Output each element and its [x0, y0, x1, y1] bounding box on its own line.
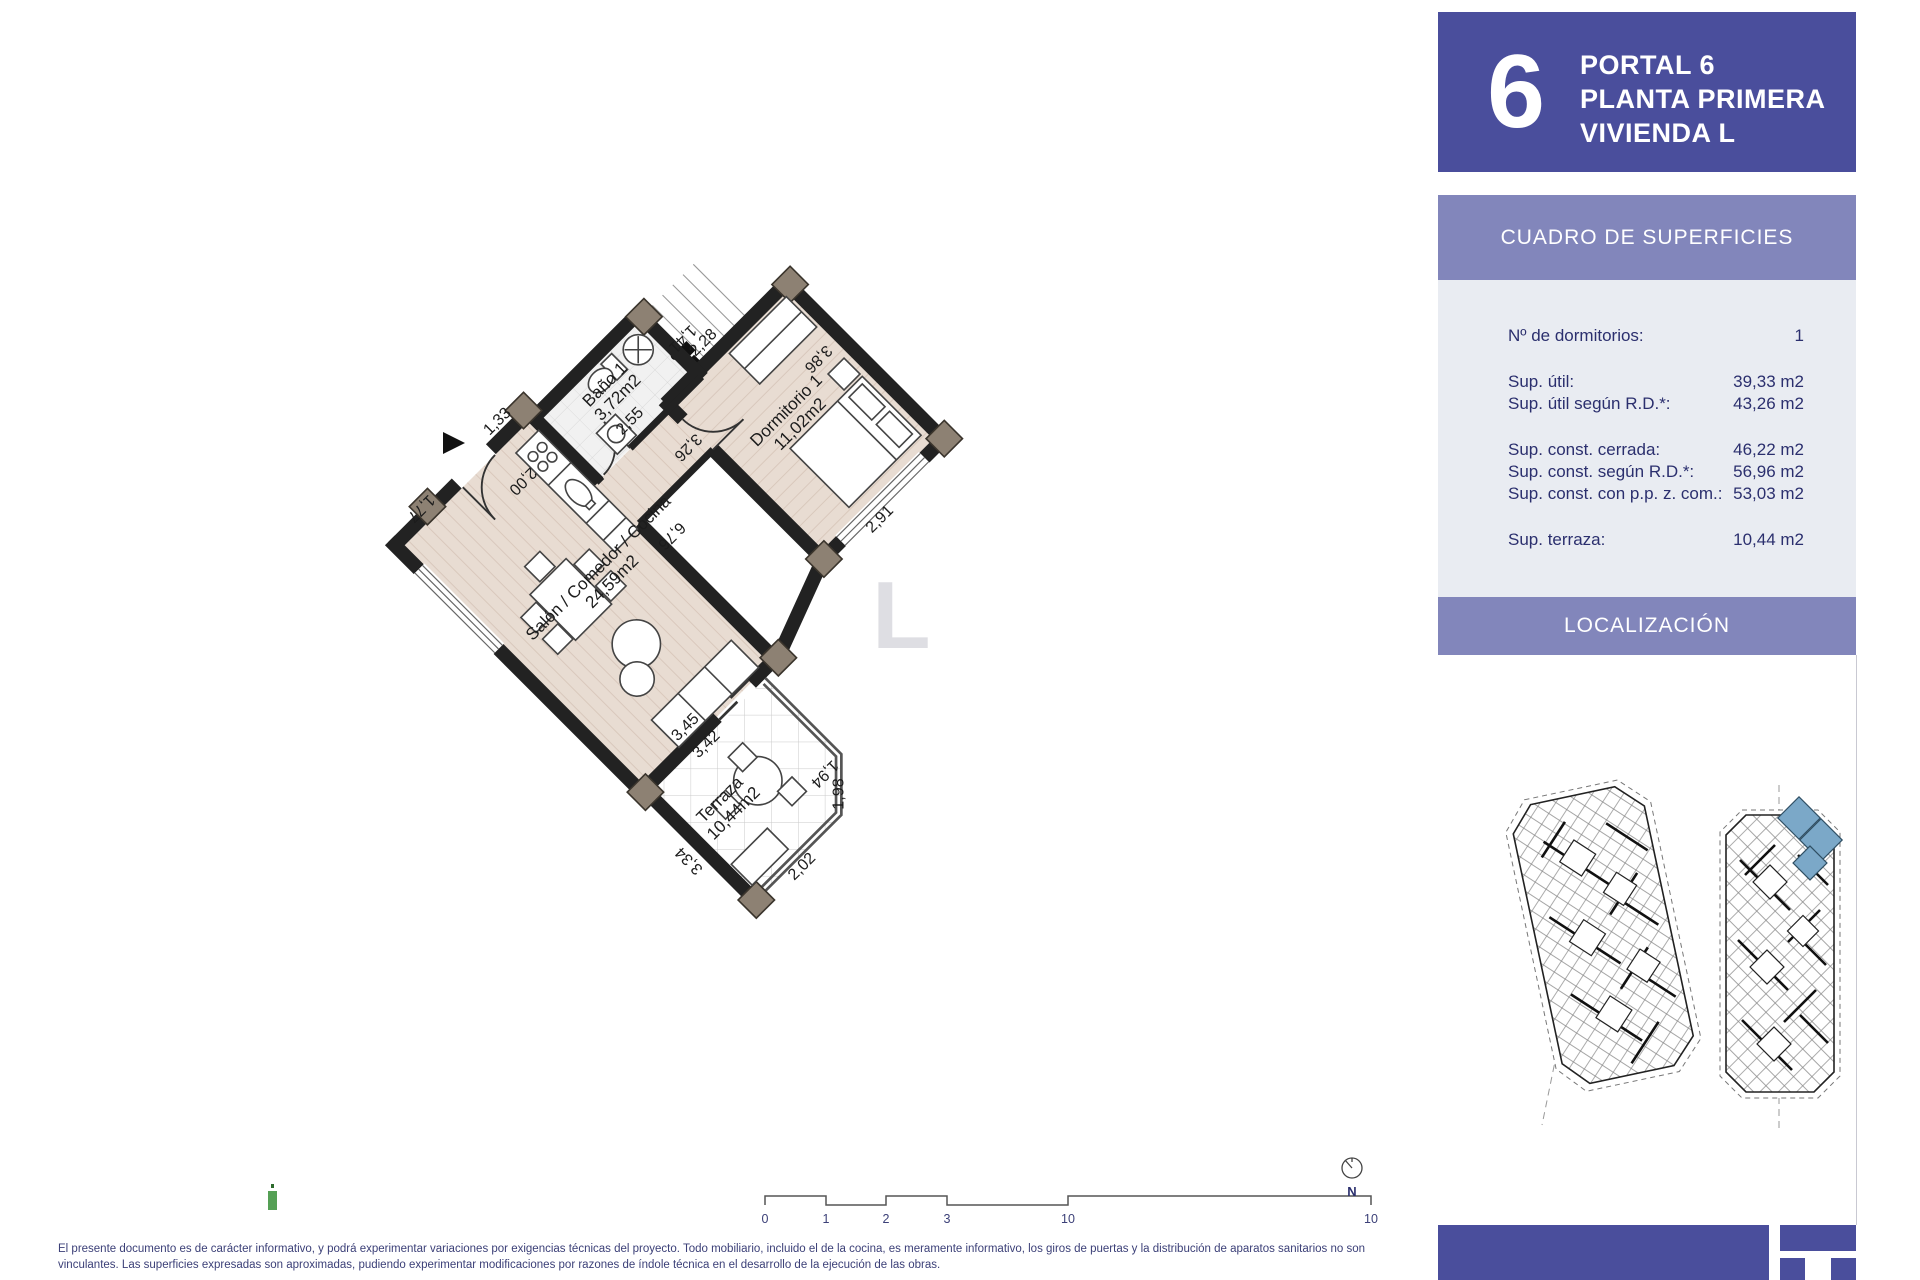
disclaimer-line-2: vinculantes. Las superficies expresadas … [58, 1259, 940, 1271]
building-left [1500, 774, 1707, 1096]
disclaimer-line-1: El presente documento es de carácter inf… [58, 1243, 1365, 1255]
table-row: Sup. const. con p.p. z. com.: 53,03 m2 [1508, 484, 1804, 506]
site-location-map [1438, 655, 1857, 1225]
scale-label-2: 2 [871, 1212, 901, 1226]
floor-plan: Baño 1 3,72m2 Dormitorio 1 11,02m2 Salón… [360, 150, 1220, 1070]
header-line-portal: PORTAL 6 [1580, 48, 1826, 82]
surfaces-band: CUADRO DE SUPERFICIES [1438, 195, 1856, 280]
table-row: Sup. útil según R.D.*: 43,26 m2 [1508, 394, 1804, 416]
footer-bar [1438, 1225, 1769, 1280]
header-box: 6 PORTAL 6 PLANTA PRIMERA VIVIENDA L [1438, 12, 1856, 172]
plan-sheet: Baño 1 3,72m2 Dormitorio 1 11,02m2 Salón… [0, 0, 1920, 1280]
scale-label-3: 3 [932, 1212, 962, 1226]
entrance-arrow-icon [443, 432, 465, 454]
header-line-vivienda: VIVIENDA L [1580, 116, 1826, 150]
surfaces-title: CUADRO DE SUPERFICIES [1501, 226, 1794, 250]
watermark-letter: L [872, 568, 931, 664]
north-compass-icon [1334, 1150, 1370, 1184]
localizacion-band: LOCALIZACIÓN [1438, 597, 1856, 655]
scale-label-1: 1 [811, 1212, 841, 1226]
table-row: Sup. útil: 39,33 m2 [1508, 372, 1804, 394]
localizacion-title: LOCALIZACIÓN [1564, 614, 1730, 638]
header-title: PORTAL 6 PLANTA PRIMERA VIVIENDA L [1580, 48, 1826, 150]
table-row: Nº de dormitorios: 1 [1508, 326, 1804, 348]
scale-label-10: 10 [1356, 1212, 1386, 1226]
scale-label-5: 10 [1053, 1212, 1083, 1226]
table-row: Sup. terraza: 10,44 m2 [1508, 530, 1804, 552]
header-line-planta: PLANTA PRIMERA [1580, 82, 1826, 116]
green-marker-dot [271, 1184, 274, 1188]
table-row: Sup. const. cerrada: 46,22 m2 [1508, 440, 1804, 462]
scale-label-0: 0 [750, 1212, 780, 1226]
portal-number: 6 [1456, 20, 1576, 164]
dim-198: 1,98 [829, 778, 847, 809]
green-marker-bar [268, 1191, 277, 1210]
table-row: Sup. const. según R.D.*: 56,96 m2 [1508, 462, 1804, 484]
north-label: N [1342, 1184, 1362, 1199]
surfaces-table: Nº de dormitorios: 1 Sup. útil: 39,33 m2… [1438, 280, 1856, 597]
